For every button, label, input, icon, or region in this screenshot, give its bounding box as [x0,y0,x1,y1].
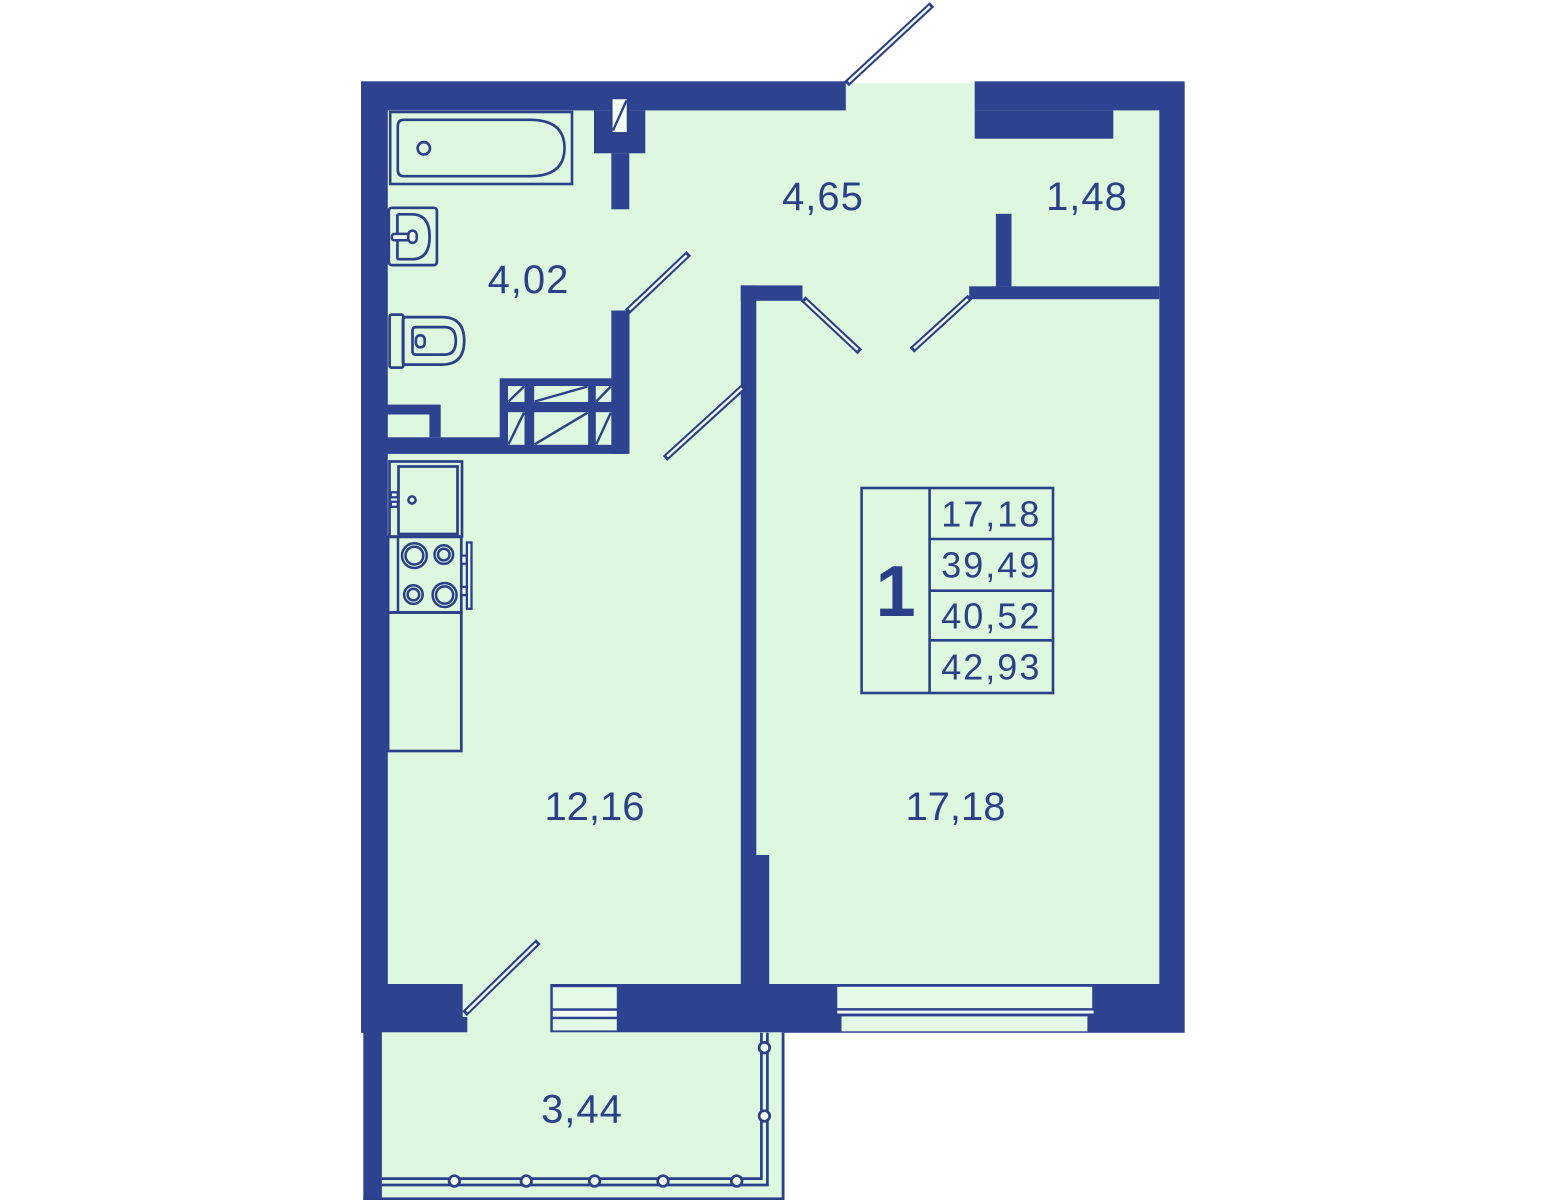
svg-text:12,16: 12,16 [544,785,644,829]
svg-text:42,93: 42,93 [941,646,1041,687]
svg-text:17,18: 17,18 [905,785,1005,829]
svg-text:17,18: 17,18 [941,493,1041,534]
svg-text:40,52: 40,52 [941,595,1041,636]
svg-text:3,44: 3,44 [541,1088,623,1132]
svg-text:1: 1 [876,552,916,632]
svg-text:1,48: 1,48 [1046,175,1128,219]
svg-text:4,02: 4,02 [488,258,570,302]
svg-text:39,49: 39,49 [941,545,1041,586]
svg-text:4,65: 4,65 [782,175,864,219]
